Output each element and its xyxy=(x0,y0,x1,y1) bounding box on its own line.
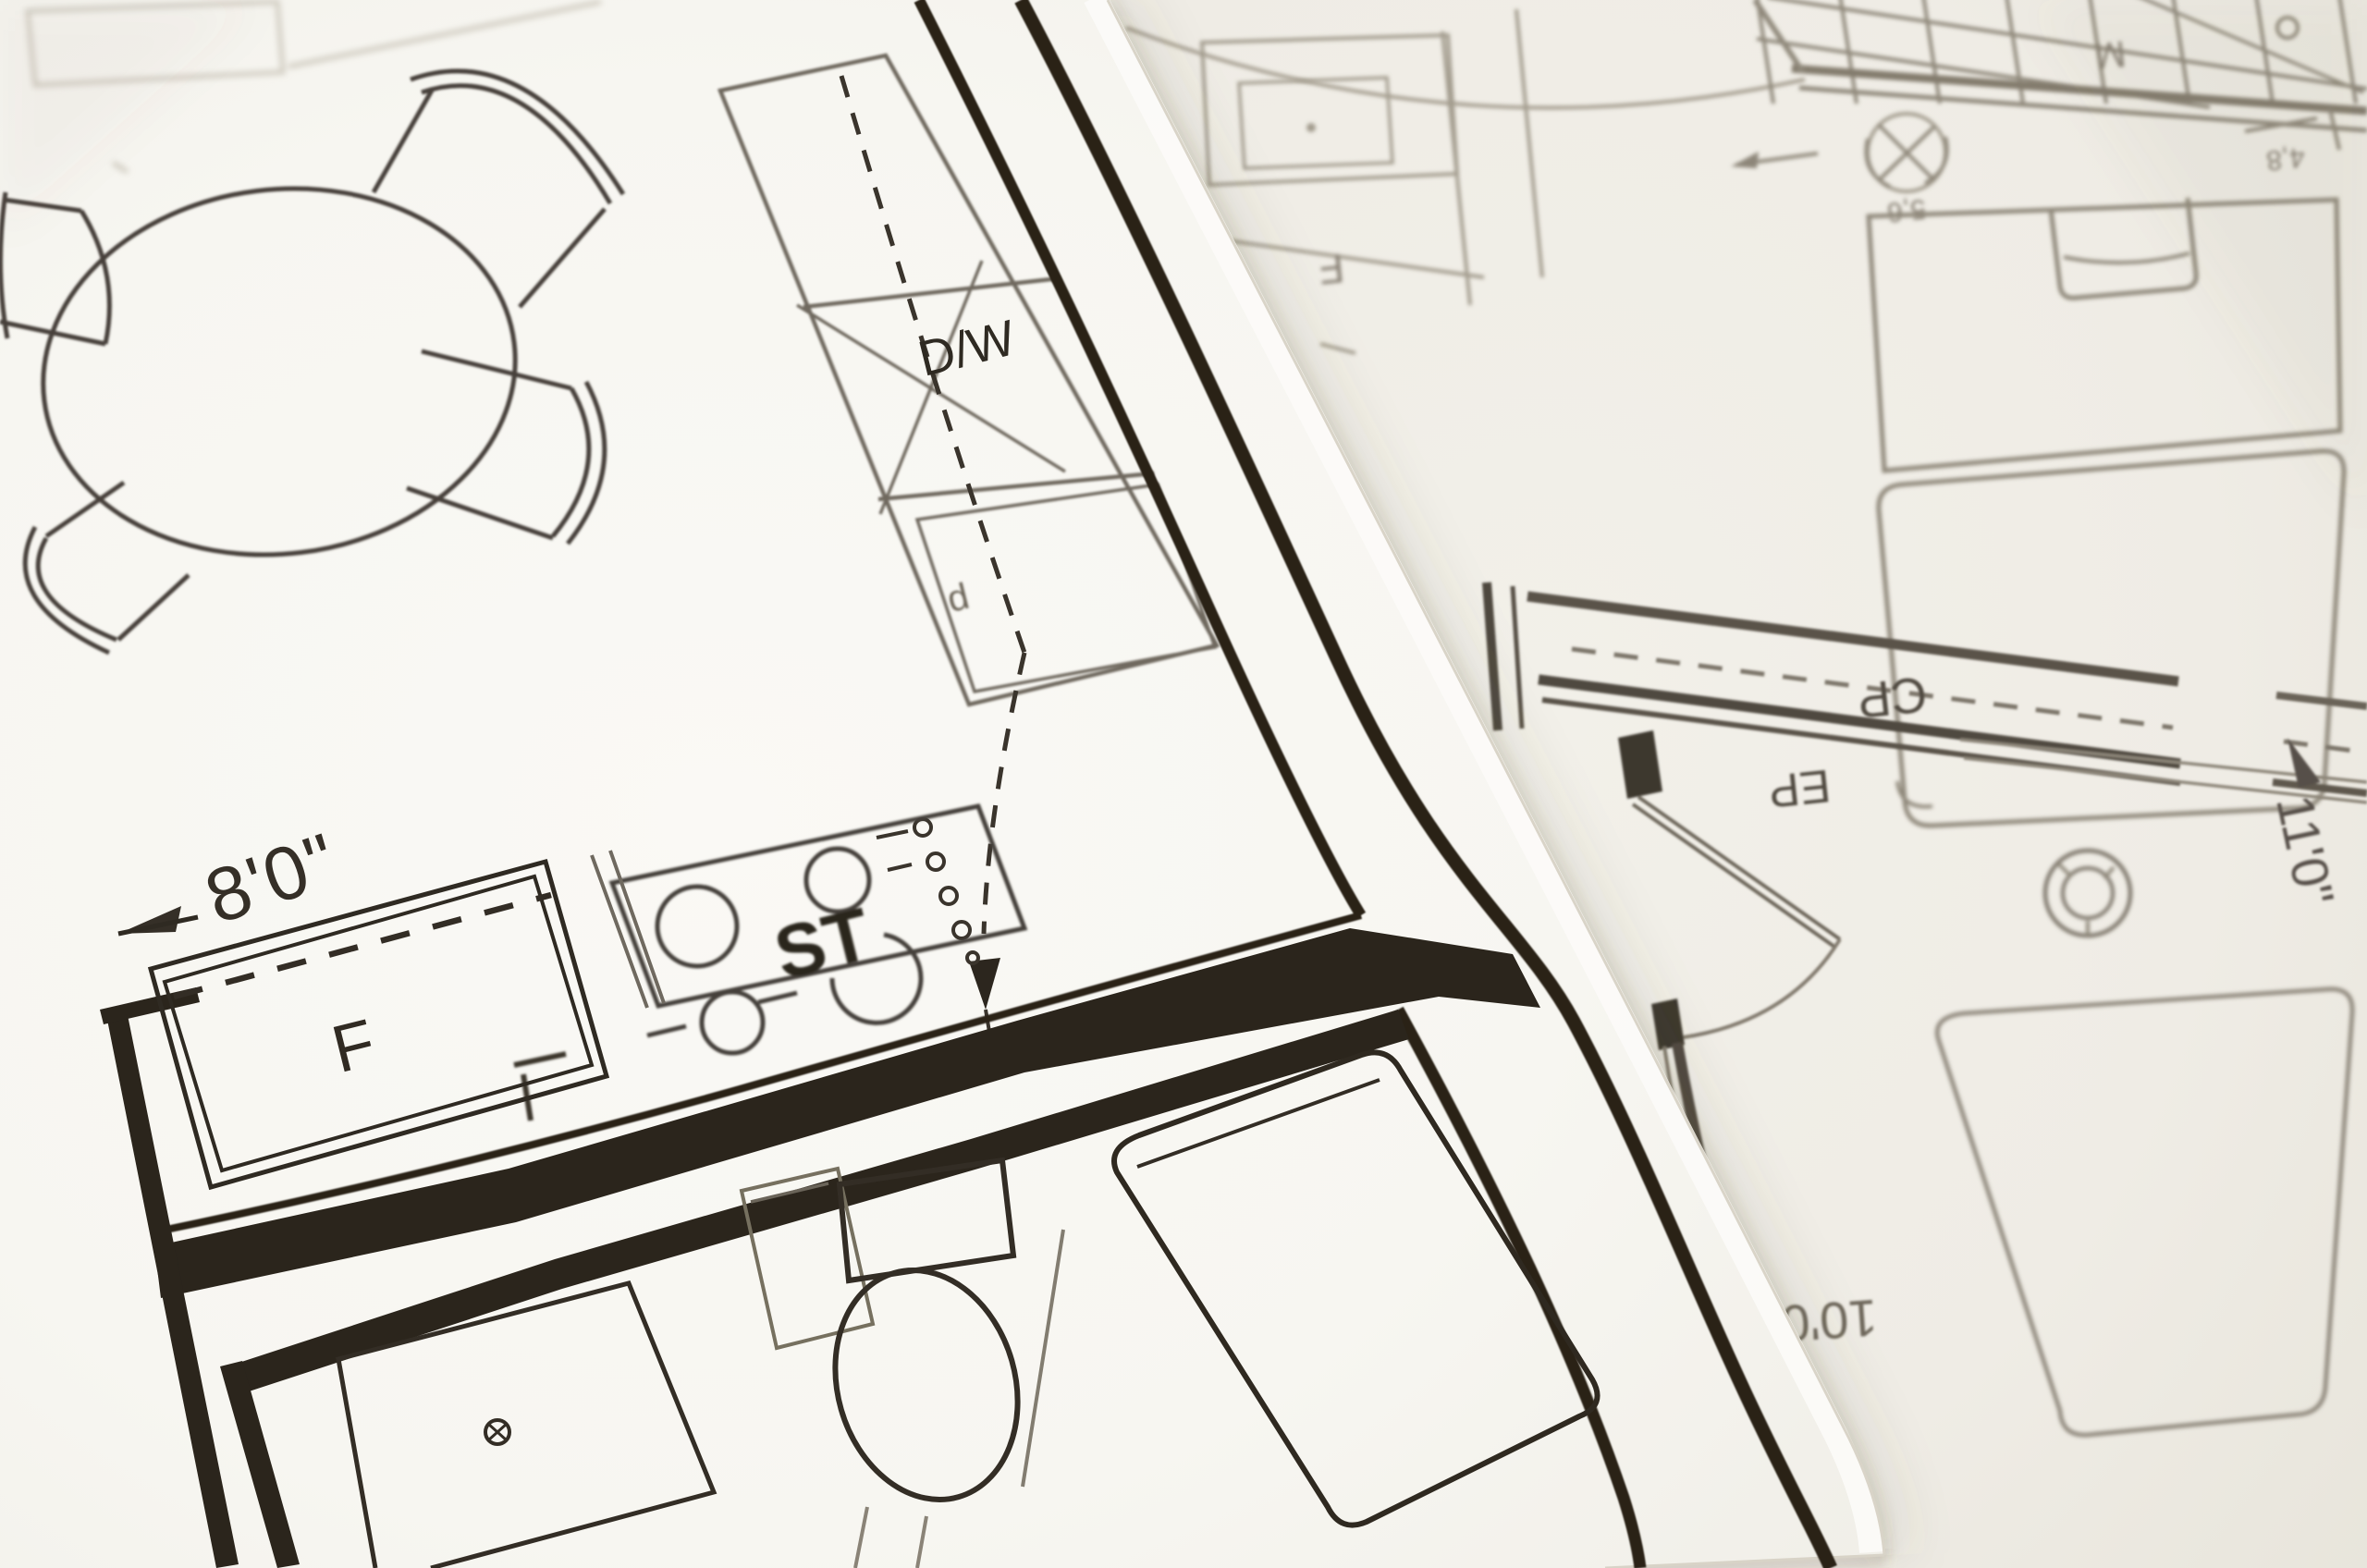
svg-text:EP: EP xyxy=(1766,760,1833,818)
svg-text:CP: CP xyxy=(1855,666,1930,729)
svg-text:5,6: 5,6 xyxy=(1885,193,1927,227)
svg-text:F: F xyxy=(1317,245,1346,293)
